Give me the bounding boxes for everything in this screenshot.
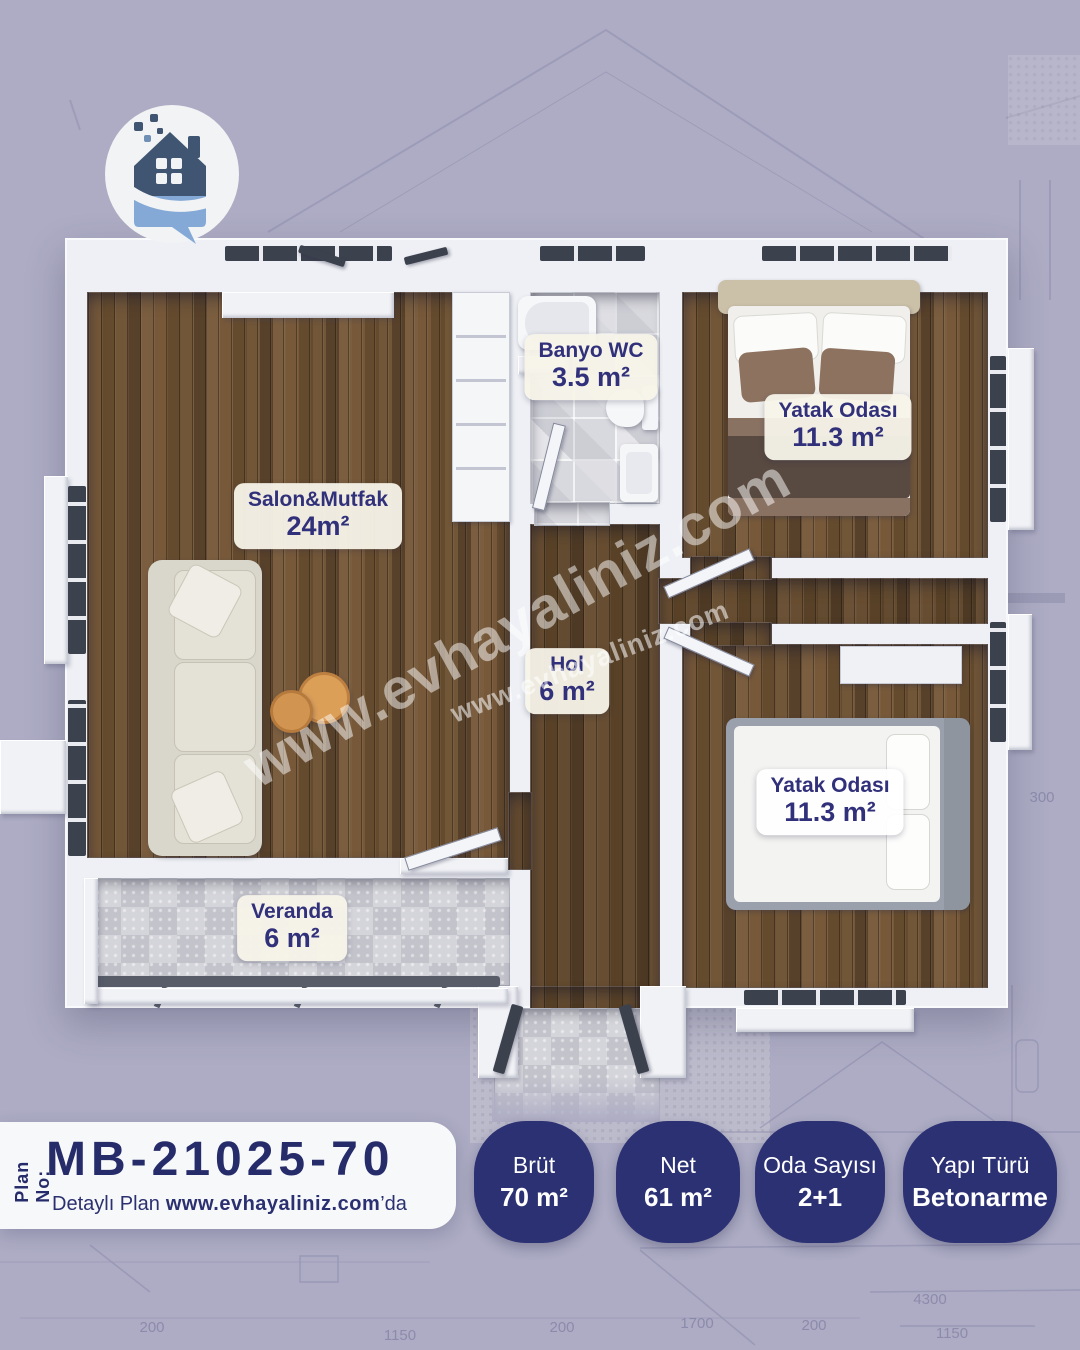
badge-value: Betonarme bbox=[903, 1182, 1057, 1213]
dim-label: 200 bbox=[801, 1317, 826, 1334]
balcony-door-left bbox=[68, 700, 86, 856]
veranda-railing bbox=[92, 976, 500, 987]
window-bedroom2 bbox=[744, 990, 906, 1005]
window-top-2 bbox=[540, 246, 645, 261]
badge-oda-sayisi: Oda Sayısı 2+1 bbox=[755, 1121, 885, 1243]
room-label-veranda: Veranda 6 m² bbox=[237, 895, 347, 961]
detail-site-url: www.evhayaliniz.com bbox=[166, 1193, 380, 1215]
window-sill-bottom bbox=[736, 1008, 914, 1032]
badge-label: Brüt bbox=[474, 1152, 594, 1179]
dim-label: 200 bbox=[139, 1319, 164, 1336]
window-sill-right-1 bbox=[1008, 348, 1034, 530]
kitchen-counter bbox=[222, 292, 394, 318]
poster-canvas: 200 1150 200 1700 200 4300 1150 300 bbox=[0, 0, 1080, 1350]
dim-label: 300 bbox=[1029, 789, 1054, 806]
window-left bbox=[68, 486, 86, 654]
room-name: Yatak Odası bbox=[770, 774, 889, 798]
evhayaliniz-logo bbox=[104, 104, 240, 244]
badge-net: Net 61 m² bbox=[616, 1121, 740, 1243]
room-area: 6 m² bbox=[251, 924, 333, 954]
dim-label: 200 bbox=[549, 1319, 574, 1336]
window-sill-left-lower bbox=[0, 740, 66, 814]
room-name: Yatak Odası bbox=[778, 399, 897, 423]
window-top-3 bbox=[762, 246, 952, 261]
dim-label: 1700 bbox=[680, 1315, 713, 1332]
dim-label: 1150 bbox=[936, 1325, 968, 1342]
room-name: Veranda bbox=[251, 900, 333, 924]
window-right-1 bbox=[990, 356, 1006, 522]
sink bbox=[620, 444, 658, 502]
window-right-2 bbox=[990, 622, 1006, 742]
room-name: Banyo WC bbox=[539, 339, 644, 363]
plan-info-bar: Plan No: MB-21025-70 Detaylı Planwww.evh… bbox=[0, 1122, 456, 1229]
badge-value: 70 m² bbox=[474, 1182, 594, 1213]
badge-value: 2+1 bbox=[755, 1182, 885, 1213]
room-area: 11.3 m² bbox=[770, 798, 889, 828]
sofa bbox=[148, 560, 262, 856]
room-label-bathroom: Banyo WC 3.5 m² bbox=[525, 334, 658, 400]
shelf-unit bbox=[452, 292, 510, 522]
room-label-salon: Salon&Mutfak 24m² bbox=[234, 483, 402, 549]
detail-text: Detaylı Plan bbox=[52, 1193, 160, 1215]
dim-label: 4300 bbox=[913, 1291, 946, 1308]
window-sill-left bbox=[44, 476, 68, 664]
room-area: 11.3 m² bbox=[778, 423, 897, 453]
badge-yapi-turu: Yapı Türü Betonarme bbox=[903, 1121, 1057, 1243]
room-area: 3.5 m² bbox=[539, 363, 644, 393]
detail-suffix: ’da bbox=[380, 1193, 407, 1215]
badge-value: 61 m² bbox=[616, 1182, 740, 1213]
badge-label: Net bbox=[616, 1152, 740, 1179]
window-sill-right-2 bbox=[1008, 614, 1032, 750]
dim-label: 1150 bbox=[384, 1327, 416, 1344]
veranda-edge-left bbox=[84, 878, 98, 1004]
bed-headboard bbox=[944, 718, 970, 910]
entrance-fade bbox=[492, 1076, 660, 1122]
plan-number: MB-21025-70 bbox=[46, 1132, 394, 1187]
room-area: 24m² bbox=[248, 512, 388, 542]
wardrobe bbox=[840, 646, 962, 684]
room-label-bedroom1: Yatak Odası 11.3 m² bbox=[764, 394, 911, 460]
plan-detail-line: Detaylı Planwww.evhayaliniz.com’da bbox=[52, 1193, 407, 1216]
room-label-bedroom2: Yatak Odası 11.3 m² bbox=[756, 769, 903, 835]
room-name: Salon&Mutfak bbox=[248, 488, 388, 512]
badge-label: Yapı Türü bbox=[903, 1152, 1057, 1179]
veranda-edge bbox=[88, 988, 508, 1004]
doorway-salon-hall bbox=[508, 792, 532, 870]
badge-brut: Brüt 70 m² bbox=[474, 1121, 594, 1243]
badge-label: Oda Sayısı bbox=[755, 1152, 885, 1179]
